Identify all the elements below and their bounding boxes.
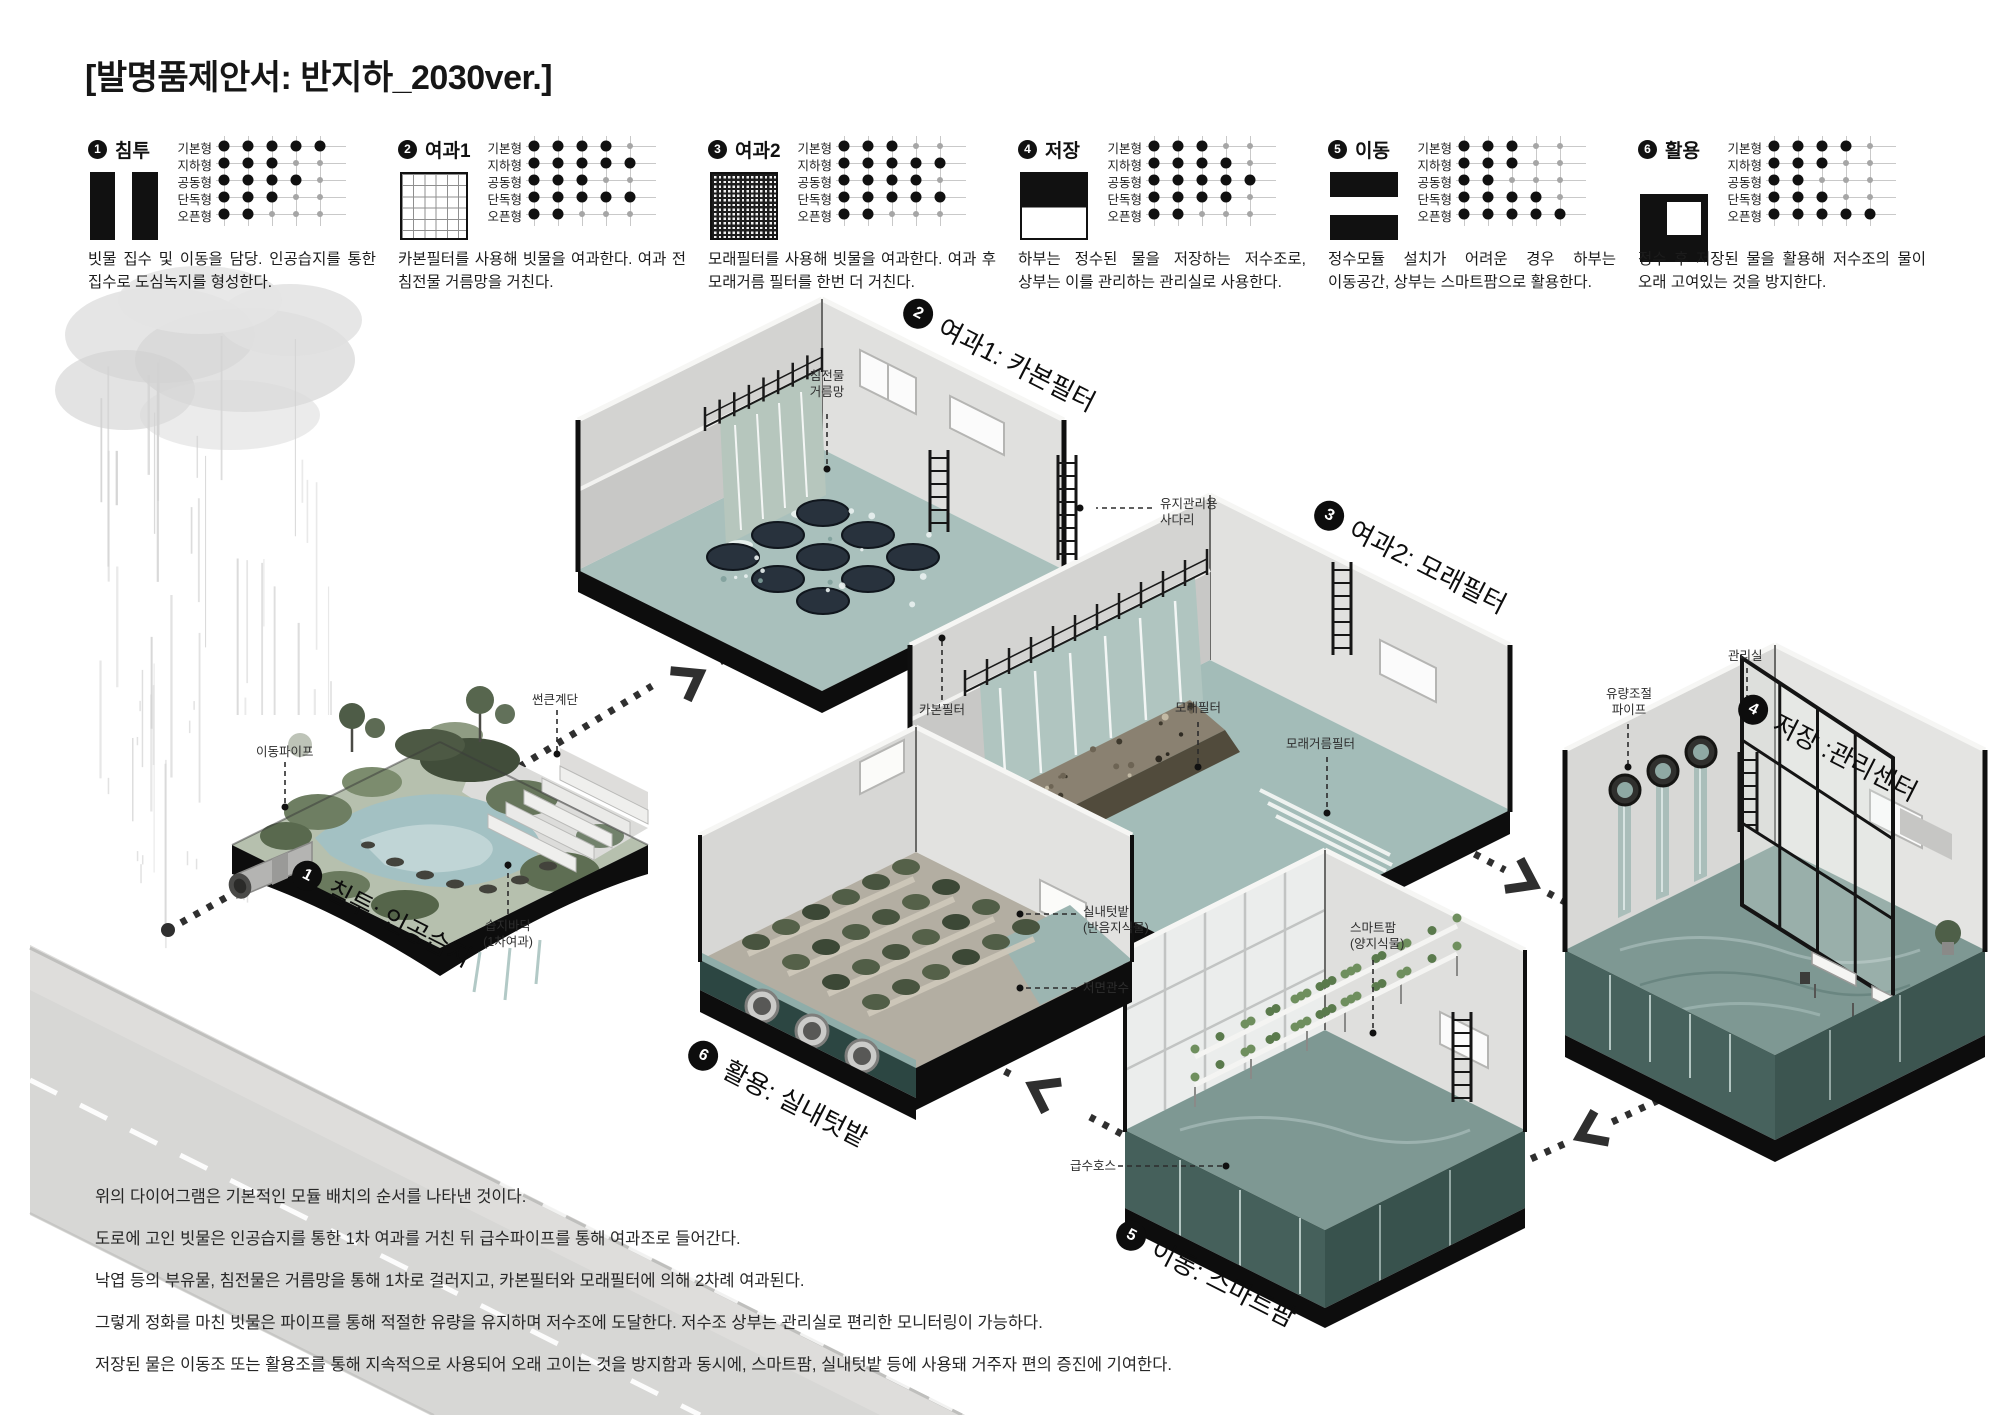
dot-filled [625,158,636,169]
dot-filled [1817,158,1828,169]
dot-matrix-gridline [526,163,656,164]
callout-flow-control-pipe: 유량조절 파이프 [1594,686,1664,719]
dot-filled [291,175,302,186]
legend-dot-matrix: 기본형지하형공동형단독형오픈형 [184,138,346,230]
dot-filled [863,209,874,220]
dot-filled [1483,158,1494,169]
dot-filled [529,175,540,186]
dot-filled [625,192,636,203]
dot-filled [887,175,898,186]
legend-item: 4 저장 기본형지하형공동형단독형오픈형 하부는 정수된 물을 저장하는 저수조… [1018,138,1302,314]
dot-filled [1149,141,1160,152]
dot-empty [1247,211,1253,217]
dot-empty [1247,143,1253,149]
dot-filled [1817,192,1828,203]
dot-empty [937,143,943,149]
legend-item-badge: 3 [708,140,727,159]
dot-matrix-gridline [836,214,966,215]
dot-matrix-gridline [526,214,656,215]
dot-empty [1247,160,1253,166]
dot-filled [1841,141,1852,152]
dot-filled [219,175,230,186]
legend-item: 5 이동 기본형지하형공동형단독형오픈형 정수모듈 설치가 어려운 경우 하부는… [1328,138,1612,314]
legend-item-icon [400,172,468,240]
dot-filled [577,158,588,169]
dot-matrix-gridline [1766,163,1896,164]
legend-item-name: 저장 [1045,136,1080,163]
dot-empty [1867,194,1873,200]
dot-filled [1865,209,1876,220]
footer-line: 그렇게 정화를 마친 빗물은 파이프를 통해 적절한 유량을 유지하며 저수조에… [95,1314,1295,1332]
dot-empty [1509,177,1515,183]
dot-filled [839,158,850,169]
dot-matrix-gridline [1766,146,1896,147]
dot-filled [243,209,254,220]
dot-filled [1531,192,1542,203]
dot-filled [1483,141,1494,152]
legend-item-description: 정수모듈 설치가 어려운 경우 하부는 이동공간, 상부는 스마트팜으로 활용한… [1328,248,1616,295]
dot-matrix-row-label: 오픈형 [1412,206,1452,225]
dot-empty [627,177,633,183]
dot-filled [1793,141,1804,152]
dot-matrix-gridline [836,180,966,181]
dot-filled [911,175,922,186]
legend-item-icon [1330,172,1398,240]
dot-empty [1533,160,1539,166]
dot-matrix-gridline [1456,214,1586,215]
dot-matrix-gridline [216,146,346,147]
footer-line: 낙엽 등의 부유물, 침전물은 거름망을 통해 1차로 걸러지고, 카본필터와 … [95,1272,1295,1290]
footer-description: 위의 다이어그램은 기본적인 모듈 배치의 순서를 나타낸 것이다. 도로에 고… [95,1188,1295,1398]
dot-filled [839,175,850,186]
dot-filled [601,158,612,169]
legend-row: 1 침투 기본형지하형공동형단독형오픈형 빗물 집수 및 이동을 담당. 인공습… [88,138,1922,314]
dot-filled [1817,141,1828,152]
dot-filled [911,158,922,169]
dot-empty [579,211,585,217]
dot-filled [863,141,874,152]
legend-item-badge: 6 [1638,140,1657,159]
legend-item-description: 빗물 집수 및 이동을 담당. 인공습지를 통한 집수로 도심녹지를 형성한다. [88,248,376,295]
legend-item-description: 하부는 정수된 물을 저장하는 저수조로, 상부는 이를 관리하는 관리실로 사… [1018,248,1306,295]
dot-matrix-row-label: 오픈형 [792,206,832,225]
dot-filled [1149,175,1160,186]
dot-empty [1557,177,1563,183]
dot-filled [1197,141,1208,152]
dot-filled [243,175,254,186]
dot-matrix-gridline [1146,163,1276,164]
dot-empty [317,160,323,166]
dot-matrix-gridline [1456,146,1586,147]
footer-line: 위의 다이어그램은 기본적인 모듈 배치의 순서를 나타낸 것이다. [95,1188,1295,1206]
dot-matrix-gridline [1766,197,1896,198]
dot-filled [1507,158,1518,169]
dot-empty [317,177,323,183]
dot-filled [1769,192,1780,203]
dot-filled [577,175,588,186]
callout-water-hose: 급수호스 [1070,1158,1116,1174]
dot-empty [1223,211,1229,217]
dot-empty [1843,194,1849,200]
callout-sand-filter: 모래필터 [1158,700,1238,716]
dot-matrix-gridline [1146,197,1276,198]
dot-empty [317,211,323,217]
dot-filled [553,158,564,169]
dot-matrix-gridline [1146,180,1276,181]
dot-filled [1769,209,1780,220]
dot-filled [1483,209,1494,220]
dot-matrix-row-label: 오픈형 [482,206,522,225]
callout-management-room: 관리실 [1728,648,1763,664]
legend-item-icon [710,172,778,240]
dot-matrix-gridline [1456,197,1586,198]
dot-empty [1557,160,1563,166]
dot-filled [839,192,850,203]
dot-filled [1459,209,1470,220]
dot-filled [863,192,874,203]
dot-filled [267,158,278,169]
callout-wetland-floor: 습지바닥 (1차여과) [468,918,548,951]
dot-filled [1197,158,1208,169]
dot-filled [1149,209,1160,220]
dot-filled [315,141,326,152]
legend-item: 1 침투 기본형지하형공동형단독형오픈형 빗물 집수 및 이동을 담당. 인공습… [88,138,372,314]
dot-matrix-gridline [526,180,656,181]
dot-empty [1247,194,1253,200]
callout-sunken-stairs: 썬큰계단 [532,692,578,708]
dot-filled [529,209,540,220]
dot-empty [937,177,943,183]
dot-filled [529,141,540,152]
dot-filled [1793,175,1804,186]
dot-filled [1197,192,1208,203]
dot-filled [1221,175,1232,186]
dot-matrix-gridline [1456,180,1586,181]
dot-filled [1793,209,1804,220]
legend-item-name: 여과1 [425,136,471,163]
dot-empty [1843,160,1849,166]
dot-matrix-gridline [1146,146,1276,147]
dot-filled [1173,158,1184,169]
dot-empty [913,211,919,217]
callout-carbon-filter: 카본필터 [902,702,982,718]
dot-matrix-gridline [836,197,966,198]
dot-matrix-row-label: 오픈형 [172,206,212,225]
dot-filled [553,209,564,220]
dot-filled [1793,192,1804,203]
dot-filled [243,192,254,203]
dot-filled [1555,209,1566,220]
dot-filled [935,192,946,203]
dot-matrix-gridline [1146,214,1276,215]
dot-filled [887,192,898,203]
legend-dot-matrix: 기본형지하형공동형단독형오픈형 [494,138,656,230]
dot-filled [219,209,230,220]
dot-empty [1819,177,1825,183]
dot-empty [937,211,943,217]
dot-matrix-gridline [216,214,346,215]
dot-empty [1533,143,1539,149]
dot-empty [889,211,895,217]
dot-empty [1557,143,1563,149]
dot-filled [1483,175,1494,186]
dot-empty [293,194,299,200]
legend-item: 6 활용 기본형지하형공동형단독형오픈형 정수 후 저장된 물을 활용해 저수조… [1638,138,1922,314]
dot-matrix-gridline [1766,180,1896,181]
dot-filled [911,192,922,203]
dot-filled [1507,209,1518,220]
dot-empty [1843,177,1849,183]
dot-matrix-gridline [1766,214,1896,215]
dot-filled [529,158,540,169]
dot-empty [1223,143,1229,149]
dot-filled [243,141,254,152]
dot-filled [1817,209,1828,220]
dot-filled [1507,192,1518,203]
dot-filled [267,175,278,186]
legend-item-badge: 5 [1328,140,1347,159]
dot-filled [1173,209,1184,220]
callout-indoor-garden: 실내텃밭 (반음지식물) [1083,904,1149,937]
dot-filled [601,141,612,152]
dot-empty [317,194,323,200]
footer-line: 저장된 물은 이동조 또는 활용조를 통해 지속적으로 사용되어 오래 고이는 … [95,1356,1295,1374]
dot-filled [529,192,540,203]
dot-matrix-gridline [1456,163,1586,164]
dot-filled [1841,209,1852,220]
dot-filled [1459,141,1470,152]
dot-filled [291,141,302,152]
dot-empty [1557,194,1563,200]
legend-item-badge: 2 [398,140,417,159]
dot-filled [267,192,278,203]
callout-sediment-mesh: 침전물 거름망 [787,368,867,401]
presentation-board: [발명품제안서: 반지하_2030ver.] 1 침투 기본형지하형공동형단독형… [0,0,2000,1415]
dot-filled [1769,158,1780,169]
dot-filled [887,141,898,152]
legend-item-name: 이동 [1355,136,1390,163]
dot-matrix-gridline [836,146,966,147]
dot-filled [1173,141,1184,152]
legend-item-badge: 4 [1018,140,1037,159]
dot-filled [1221,192,1232,203]
dot-empty [627,211,633,217]
dot-filled [553,175,564,186]
dot-empty [293,160,299,166]
dot-filled [1531,209,1542,220]
page-title: [발명품제안서: 반지하_2030ver.] [85,50,552,99]
callout-maintenance-ladder: 유지관리용 사다리 [1160,496,1218,529]
dot-filled [1769,175,1780,186]
dot-filled [219,141,230,152]
callout-bottom-watering: 저면관수 [1083,980,1129,996]
legend-dot-matrix: 기본형지하형공동형단독형오픈형 [1734,138,1896,230]
dot-empty [603,177,609,183]
dot-filled [553,192,564,203]
dot-filled [1793,158,1804,169]
legend-item-name: 침투 [115,136,150,163]
dot-filled [553,141,564,152]
dot-matrix-gridline [216,197,346,198]
dot-filled [935,158,946,169]
dot-matrix-gridline [216,163,346,164]
dot-empty [293,211,299,217]
dot-empty [913,143,919,149]
legend-dot-matrix: 기본형지하형공동형단독형오픈형 [1114,138,1276,230]
dot-matrix-row-label: 오픈형 [1722,206,1762,225]
dot-matrix-gridline [526,146,656,147]
dot-filled [1459,175,1470,186]
dot-filled [1149,158,1160,169]
footer-line: 도로에 고인 빗물은 인공습지를 통한 1차 여과를 거친 뒤 급수파이프를 통… [95,1230,1295,1248]
dot-matrix-row-label: 오픈형 [1102,206,1142,225]
dot-filled [601,192,612,203]
legend-dot-matrix: 기본형지하형공동형단독형오픈형 [1424,138,1586,230]
dot-filled [1245,175,1256,186]
callout-smart-farm: 스마트팜 (양지식물) [1350,920,1404,953]
dot-matrix-gridline [836,163,966,164]
dot-empty [627,143,633,149]
dot-filled [1221,158,1232,169]
dot-filled [839,209,850,220]
dot-filled [577,141,588,152]
callout-transfer-pipe: 이동파이프 [256,744,314,760]
dot-empty [1867,177,1873,183]
legend-item-icon [1020,172,1088,240]
legend-item-name: 여과2 [735,136,781,163]
dot-empty [269,211,275,217]
callout-sand-strain-filter: 모래거름필터 [1286,736,1355,752]
legend-item-icon [90,172,158,240]
legend-item: 3 여과2 기본형지하형공동형단독형오픈형 모래필터를 사용해 빗물을 여과한다… [708,138,992,314]
dot-filled [267,141,278,152]
dot-filled [1483,192,1494,203]
dot-empty [1867,143,1873,149]
dot-filled [577,192,588,203]
dot-filled [219,192,230,203]
legend-item-name: 활용 [1665,136,1700,163]
legend-item-description: 카본필터를 사용해 빗물을 여과한다. 여과 전 침전물 거름망을 거친다. [398,248,686,295]
legend-item-description: 모래필터를 사용해 빗물을 여과한다. 여과 후 모래거름 필터를 한번 더 거… [708,248,996,295]
dot-filled [1459,192,1470,203]
dot-filled [243,158,254,169]
dot-empty [1867,160,1873,166]
dot-empty [603,211,609,217]
legend-item-badge: 1 [88,140,107,159]
dot-filled [887,158,898,169]
dot-empty [1533,177,1539,183]
dot-filled [1769,141,1780,152]
dot-matrix-gridline [526,197,656,198]
dot-filled [1149,192,1160,203]
legend-item-description: 정수 후 저장된 물을 활용해 저수조의 물이 오래 고여있는 것을 방지한다. [1638,248,1926,295]
dot-filled [863,158,874,169]
legend-dot-matrix: 기본형지하형공동형단독형오픈형 [804,138,966,230]
dot-filled [863,175,874,186]
dot-filled [1173,192,1184,203]
dot-filled [1507,141,1518,152]
legend-item: 2 여과1 기본형지하형공동형단독형오픈형 카본필터를 사용해 빗물을 여과한다… [398,138,682,314]
dot-filled [839,141,850,152]
dot-filled [1197,175,1208,186]
dot-empty [1199,211,1205,217]
dot-filled [1459,158,1470,169]
dot-filled [219,158,230,169]
dot-filled [1173,175,1184,186]
dot-matrix-gridline [216,180,346,181]
